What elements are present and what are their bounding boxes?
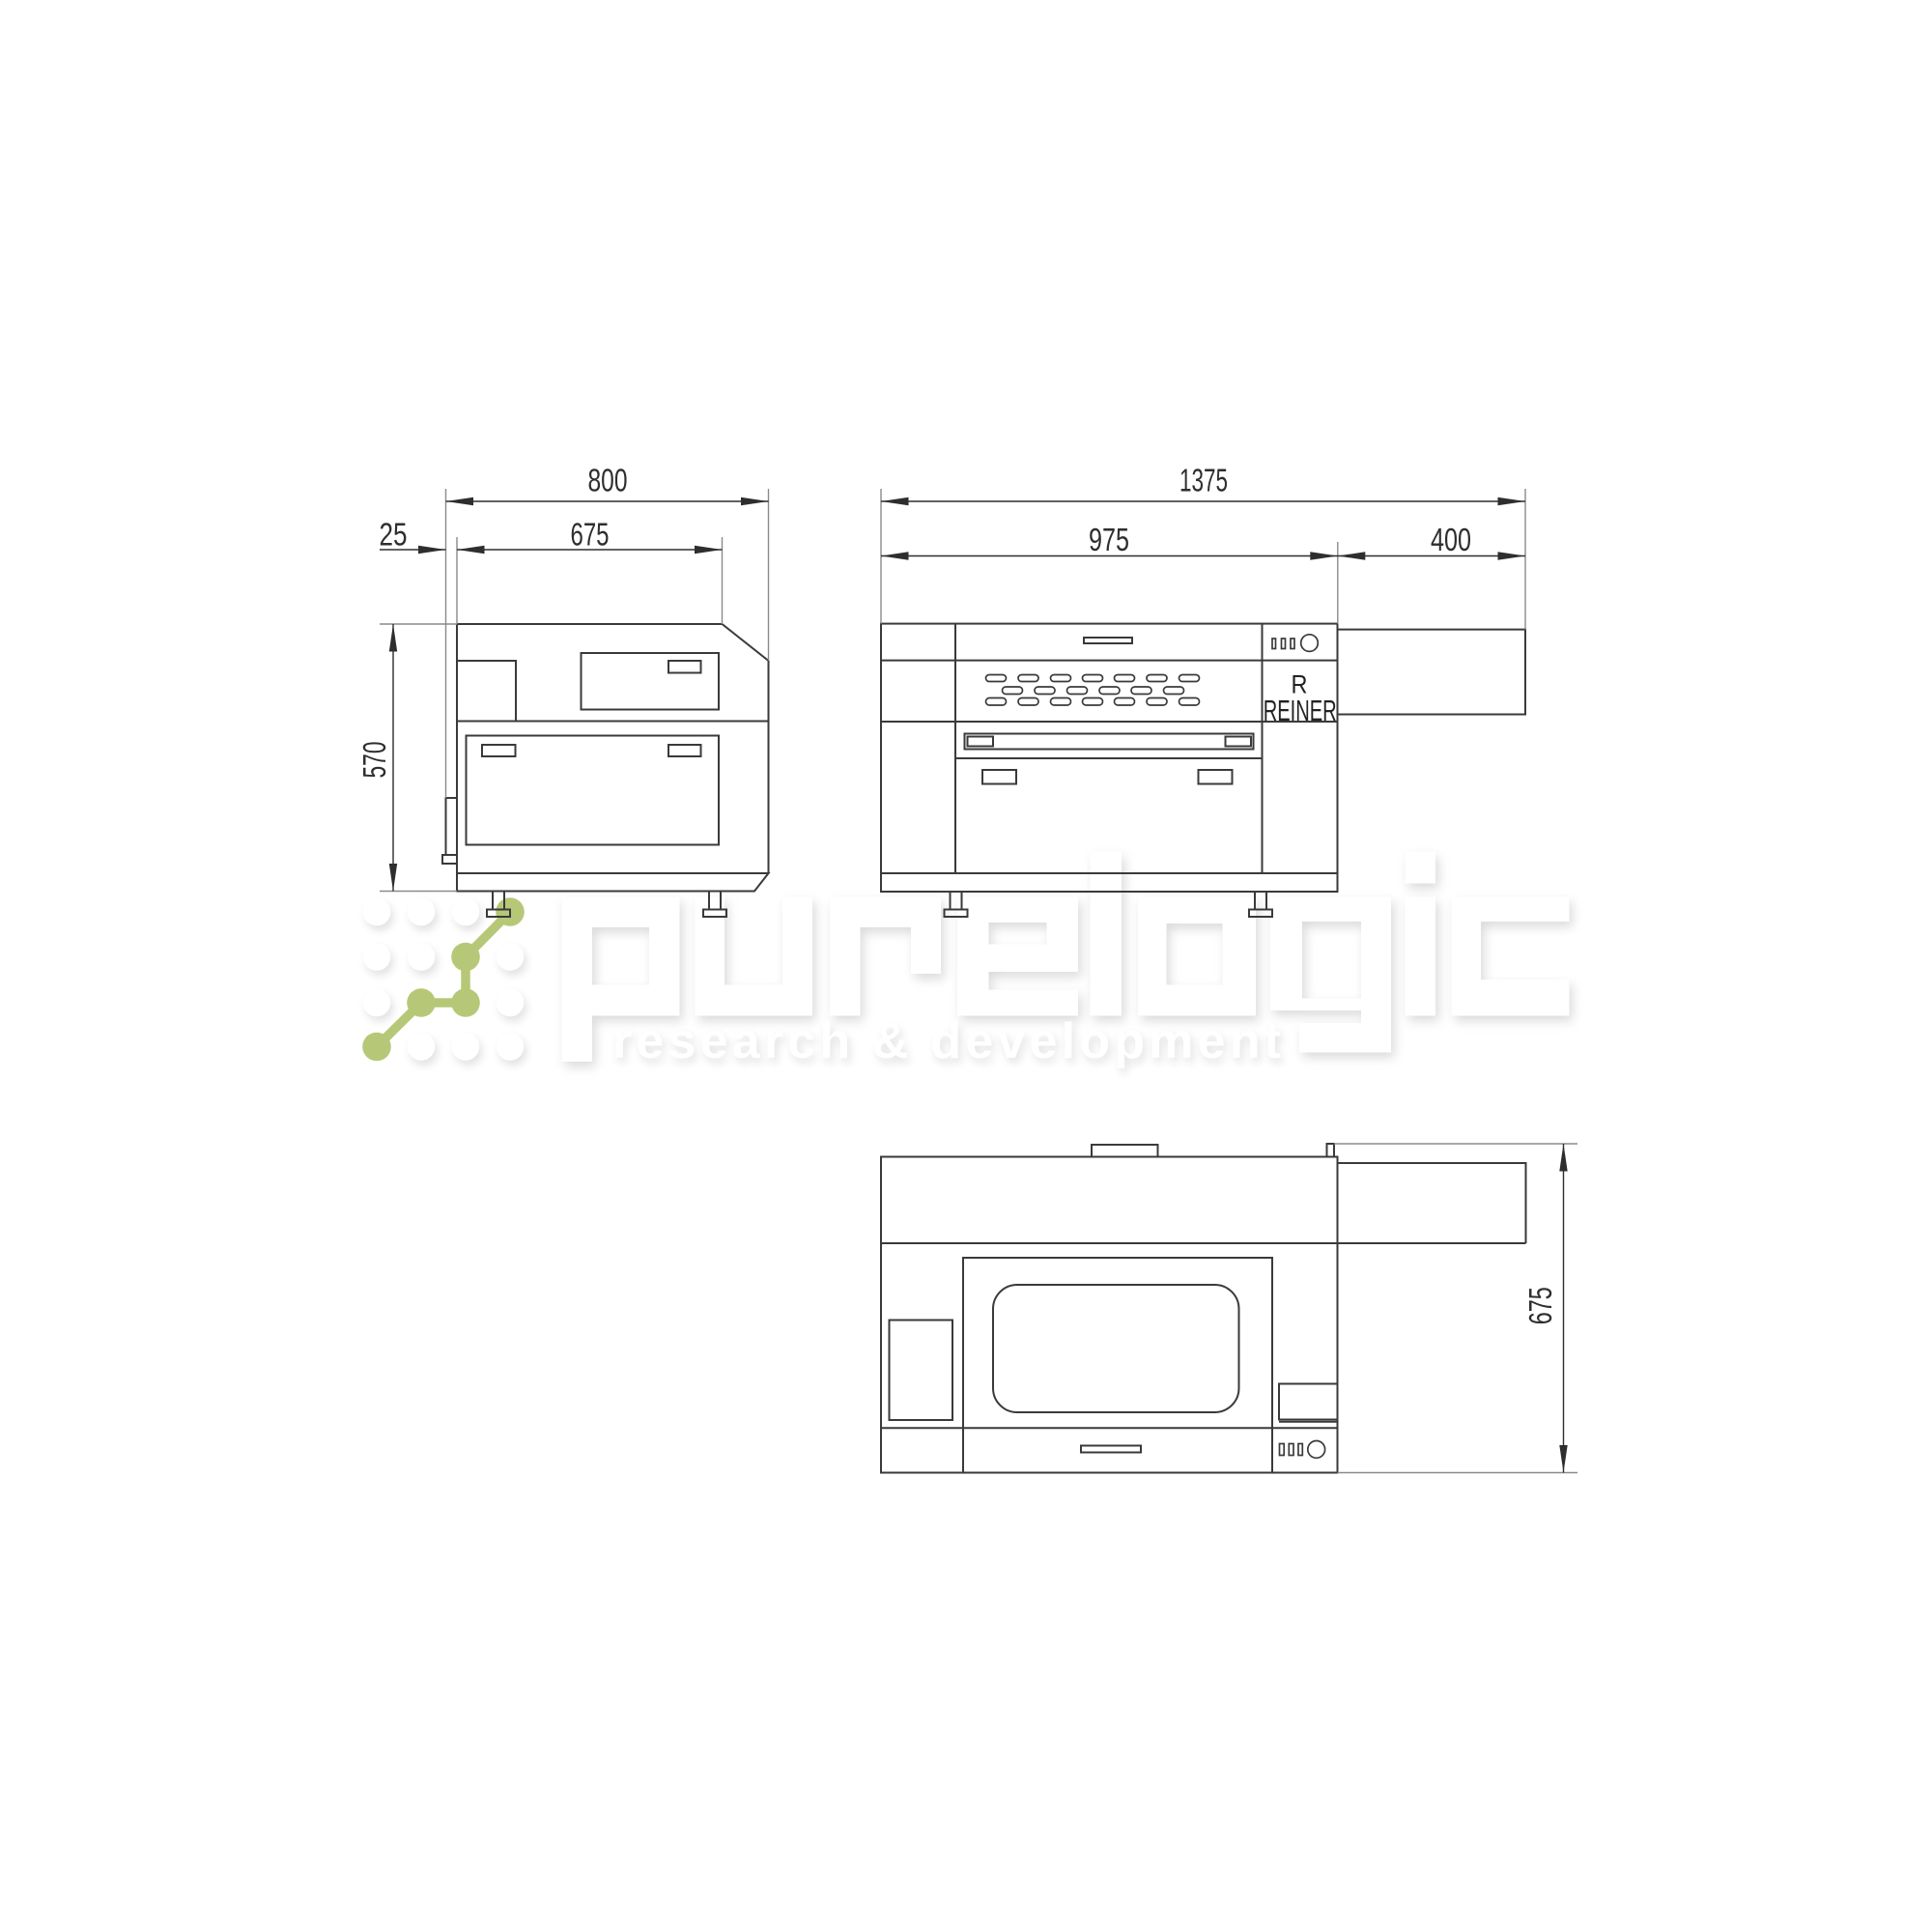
svg-text:REINER: REINER — [1264, 694, 1337, 727]
svg-text:975: 975 — [1089, 522, 1129, 557]
svg-text:570: 570 — [356, 742, 392, 779]
svg-text:675: 675 — [571, 517, 610, 553]
svg-text:25: 25 — [380, 517, 408, 553]
svg-text:675: 675 — [1522, 1287, 1558, 1324]
svg-text:research & development: research & development — [612, 1013, 1281, 1069]
svg-text:400: 400 — [1431, 522, 1471, 557]
svg-text:800: 800 — [588, 463, 628, 498]
svg-text:1375: 1375 — [1179, 463, 1228, 498]
